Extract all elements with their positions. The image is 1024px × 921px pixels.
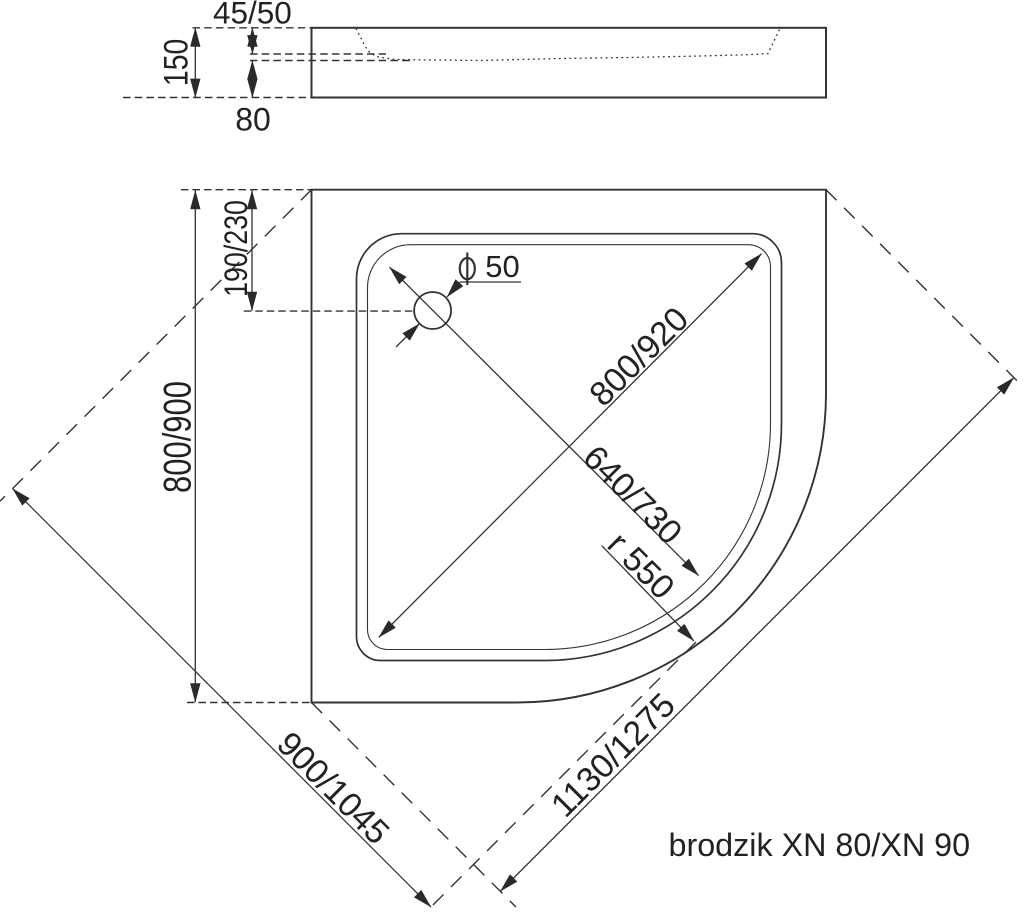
svg-text:800/900: 800/900	[156, 381, 199, 493]
svg-text:190/230: 190/230	[219, 200, 255, 297]
svg-text:800/920: 800/920	[582, 300, 696, 414]
svg-text:1130/1275: 1130/1275	[544, 686, 683, 825]
svg-text:45/50: 45/50	[213, 0, 292, 31]
svg-text:80: 80	[235, 102, 271, 138]
svg-text:brodzik XN 80/XN 90: brodzik XN 80/XN 90	[669, 827, 971, 863]
svg-text:900/1045: 900/1045	[269, 725, 396, 852]
svg-text:50: 50	[485, 249, 519, 284]
svg-text:150: 150	[157, 39, 195, 86]
